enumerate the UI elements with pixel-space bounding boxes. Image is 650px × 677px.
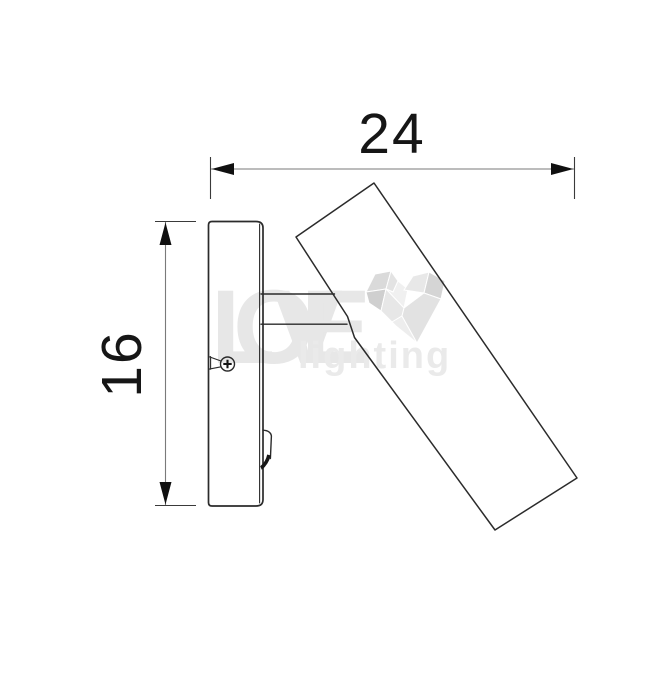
arrowhead-right-icon xyxy=(551,163,574,175)
power-switch xyxy=(260,430,271,470)
height-dimension: 16 xyxy=(90,222,196,506)
drawing-canvas: LOVE lighting xyxy=(0,0,650,677)
product-technical-drawing: LOVE lighting xyxy=(0,0,650,677)
watermark-heart-icon xyxy=(366,271,445,343)
height-dimension-label: 16 xyxy=(90,330,154,397)
arrowhead-up-icon xyxy=(160,223,172,246)
watermark: LOVE lighting xyxy=(211,269,451,386)
width-dimension-label: 24 xyxy=(358,102,425,166)
width-dimension: 24 xyxy=(211,102,575,199)
switch-outline xyxy=(263,430,271,458)
watermark-subbrand-text: lighting xyxy=(298,335,451,377)
arrowhead-left-icon xyxy=(212,163,235,175)
switch-lever xyxy=(260,455,271,470)
arrowhead-down-icon xyxy=(160,482,172,505)
